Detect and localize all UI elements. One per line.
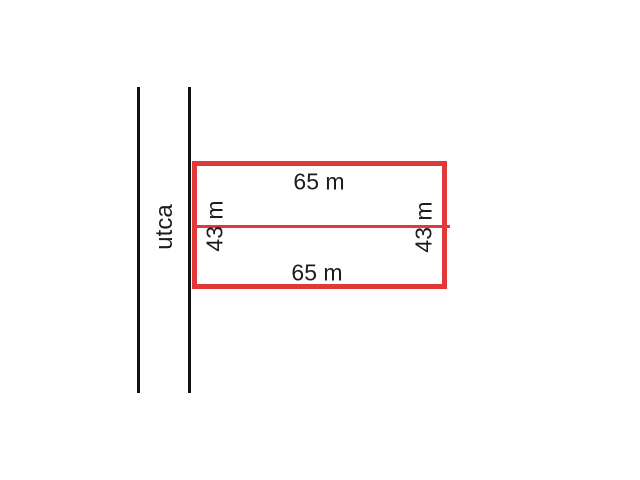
dimension-label-bottom-width: 65 m [291,260,342,287]
street-edge-line-right [188,87,191,393]
dimension-label-right-height: 43 m [411,201,438,252]
street-edge-line-left [137,87,140,393]
dimension-label-top-width: 65 m [293,169,344,196]
diagram-canvas: utca 65 m 65 m 43 m 43 m [0,0,640,480]
dimension-label-left-height: 43 m [202,200,229,251]
street-name-label: utca [151,204,179,249]
